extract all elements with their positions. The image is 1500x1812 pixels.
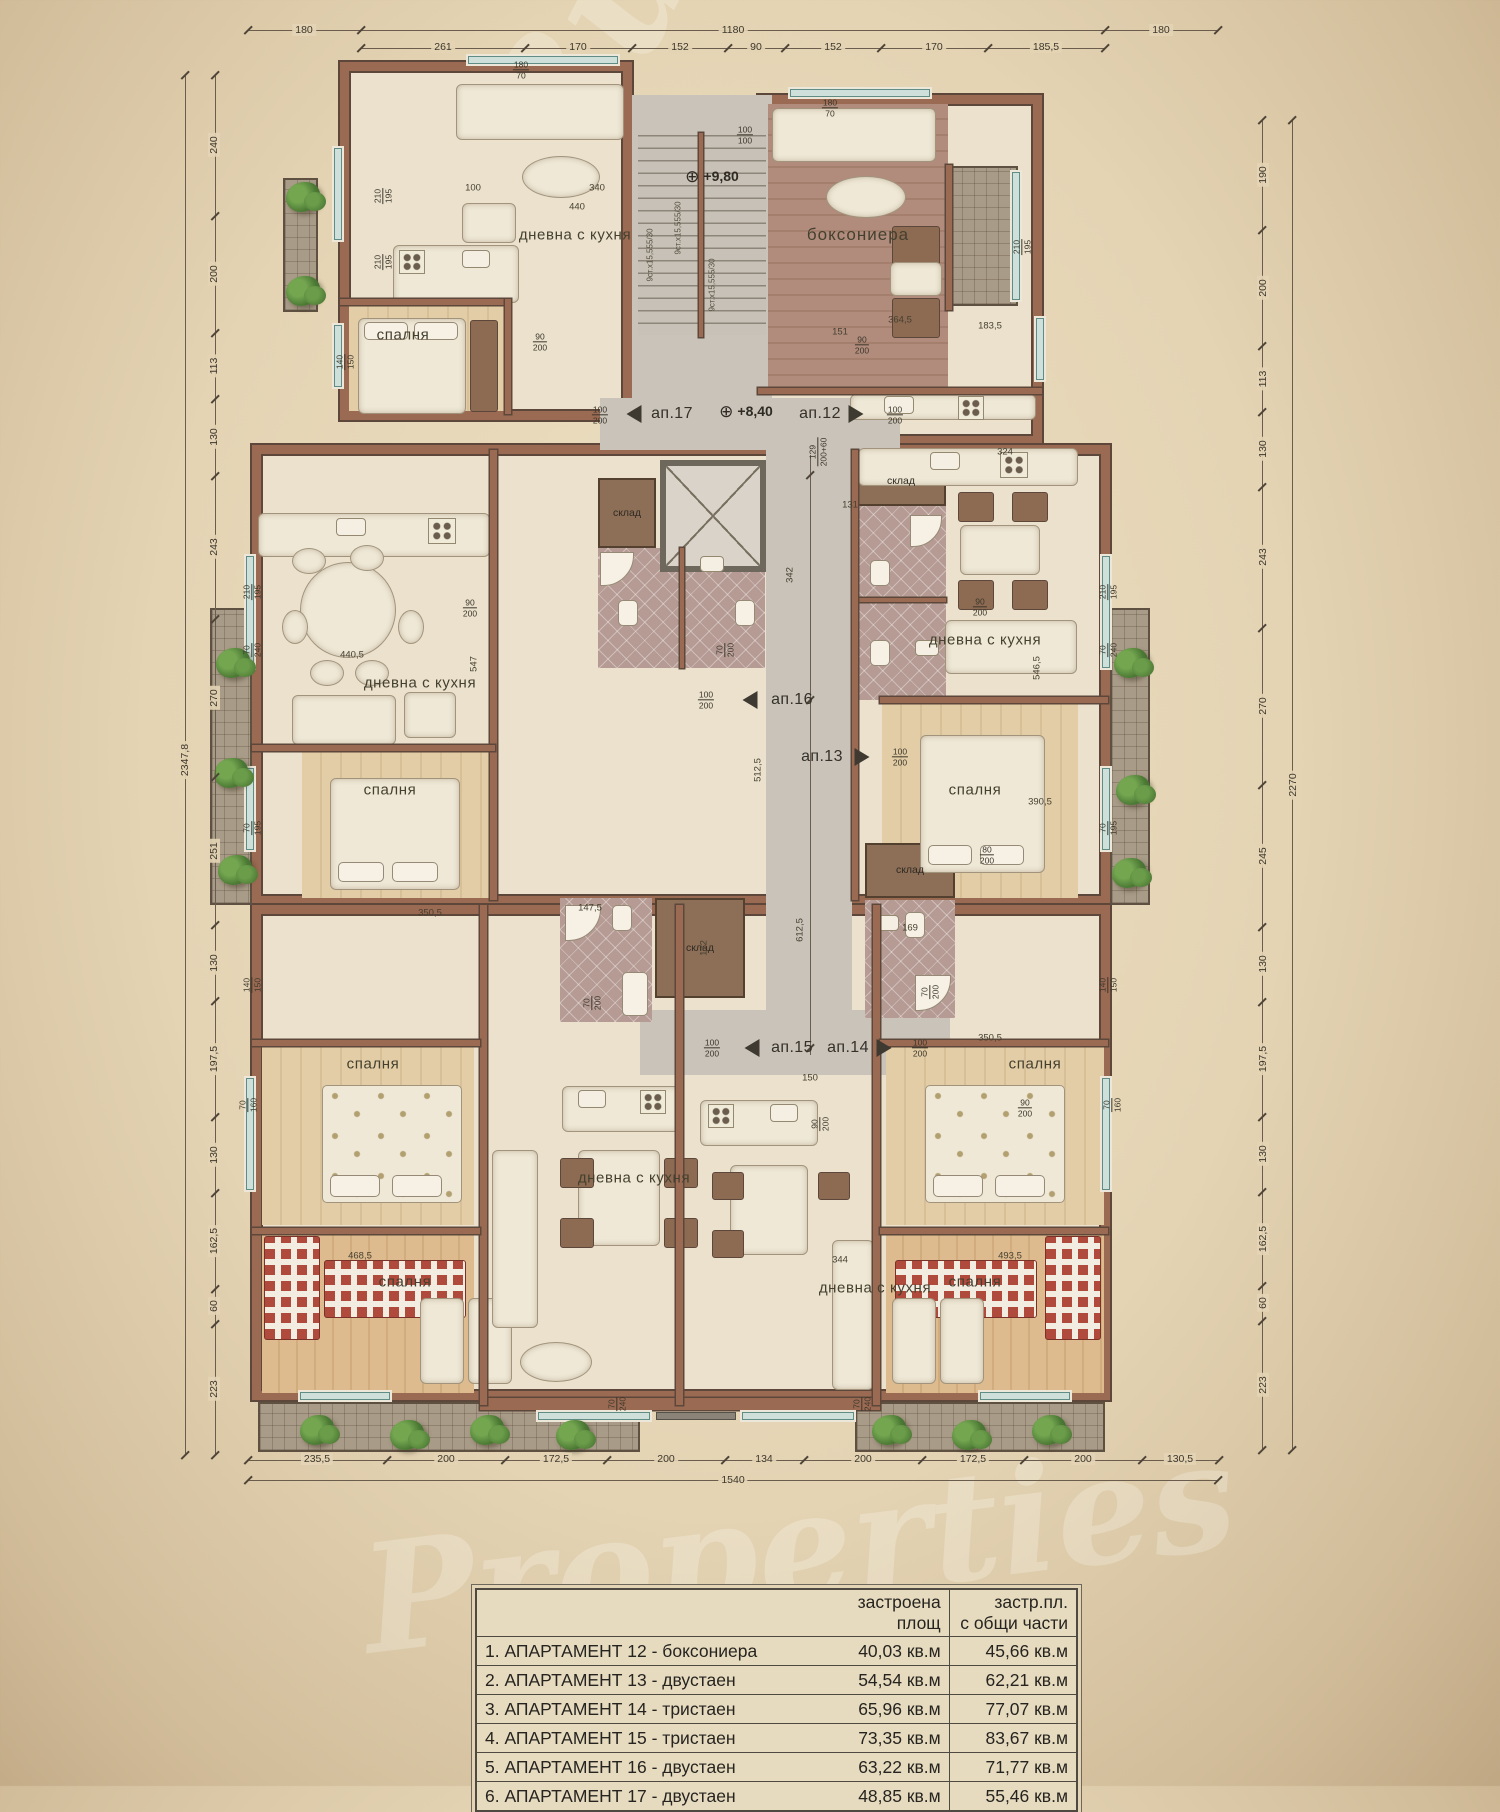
apartment-name: 4. АПАРТАМЕНТ 15 - тристаен	[476, 1724, 790, 1753]
plant	[1032, 1415, 1066, 1445]
dimension-line	[361, 48, 1105, 49]
opening-size-label: 100200	[912, 1037, 928, 1058]
dimension-label: 324	[997, 447, 1013, 458]
window	[1102, 768, 1110, 850]
entry-door	[656, 1412, 736, 1420]
apartment-area-table: застроена площ застр.пл. с общи части 1.…	[475, 1588, 1078, 1812]
dimension-label: 240	[208, 133, 220, 157]
plant	[952, 1420, 986, 1450]
dimension-label: 1180	[719, 24, 748, 36]
storage-label: склад	[887, 475, 915, 487]
room-label: дневна с кухня	[819, 1280, 931, 1297]
partition-wall	[758, 388, 1042, 394]
opening-size-label: 210195	[241, 584, 262, 600]
dimension-label: 2347,8	[179, 741, 191, 779]
table-row: 4. АПАРТАМЕНТ 15 - тристаен73,35 кв.м83,…	[476, 1724, 1077, 1753]
dimension-label: 2270	[1287, 770, 1299, 799]
dimension-label: 60	[1257, 1294, 1269, 1312]
opening-size-label: 70200	[714, 643, 735, 657]
apartment-marker: ап.14	[827, 1039, 869, 1057]
dimension-label: 100	[465, 183, 481, 194]
bathtub	[622, 972, 648, 1016]
plant	[218, 855, 252, 885]
dimension-label: 197,5	[1257, 1043, 1269, 1075]
armchair	[404, 692, 456, 738]
dimension-label: 113	[1257, 368, 1269, 391]
dimension-label: 235,5	[301, 1453, 333, 1465]
window	[300, 1392, 390, 1400]
stove	[958, 396, 984, 420]
terrace-top-right	[948, 166, 1018, 306]
stair-divider	[699, 133, 703, 337]
table	[890, 262, 942, 296]
dimension-label: 200	[208, 262, 220, 286]
plant	[286, 182, 320, 212]
dimension-label: 90	[747, 41, 765, 53]
opening-size-label: 70200	[919, 985, 940, 999]
opening-size-label: 70240	[851, 1397, 872, 1411]
opening-size-label: 140150	[334, 354, 355, 370]
dimension-label: 152	[821, 41, 845, 53]
dimension-label: 170	[566, 41, 590, 53]
storage-label: склад	[613, 507, 641, 519]
opening-size-label: 210195	[1097, 584, 1118, 600]
dining-table	[300, 562, 396, 658]
partition-wall	[480, 905, 487, 1405]
room-label: дневна с кухня	[578, 1170, 690, 1187]
pillow	[928, 845, 972, 865]
header-line: застр.пл.	[958, 1592, 1068, 1613]
stove	[399, 250, 425, 274]
built-area-value: 40,03 кв.м	[790, 1637, 950, 1666]
table-row: 1. АПАРТАМЕНТ 12 - боксониера40,03 кв.м4…	[476, 1637, 1077, 1666]
toilet	[612, 905, 632, 931]
chair	[712, 1172, 744, 1200]
dimension-label: 60	[208, 1297, 220, 1315]
bed	[940, 1298, 984, 1384]
sofa	[292, 695, 396, 745]
dimension-label: 197,5	[208, 1043, 220, 1075]
chair	[1012, 580, 1048, 610]
partition-wall	[340, 299, 510, 305]
dimension-label: 162,5	[1257, 1223, 1269, 1255]
total-area-value: 77,07 кв.м	[949, 1695, 1077, 1724]
header-line: площ	[798, 1613, 941, 1634]
total-area-value: 62,21 кв.м	[949, 1666, 1077, 1695]
total-area-value: 83,67 кв.м	[949, 1724, 1077, 1753]
coffee-table	[826, 176, 906, 218]
plant	[872, 1415, 906, 1445]
chair	[398, 610, 424, 644]
sink	[700, 556, 724, 572]
sink	[336, 518, 366, 536]
apartment-name: 3. АПАРТАМЕНТ 14 - тристаен	[476, 1695, 790, 1724]
opening-size-label: 100200	[592, 404, 608, 425]
opening-size-label: 70195	[1097, 821, 1118, 835]
dimension-label: 512,5	[753, 758, 764, 782]
dimension-label: 340	[589, 183, 605, 194]
dimension-label: 150	[802, 1073, 818, 1084]
opening-size-label: 140150	[1097, 977, 1118, 993]
chair	[560, 1218, 594, 1248]
sink	[578, 1090, 606, 1108]
apartment-name: 1. АПАРТАМЕНТ 12 - боксониера	[476, 1637, 790, 1666]
dimension-label: 223	[208, 1377, 220, 1401]
dimension-label: 113	[208, 355, 220, 378]
dimension-label: 200	[434, 1453, 458, 1465]
dimension-label: 493,5	[998, 1251, 1022, 1262]
opening-size-label: 18070	[513, 59, 529, 80]
pillow	[392, 1175, 442, 1197]
partition-wall	[880, 1228, 1108, 1234]
window	[742, 1412, 854, 1420]
bed	[420, 1298, 464, 1384]
opening-size-label: 100200	[704, 1037, 720, 1058]
stove	[640, 1090, 666, 1114]
partition-wall	[873, 905, 880, 1405]
opening-size-label: 100200	[698, 689, 714, 710]
room-label: дневна с кухня	[364, 675, 476, 692]
sofa	[772, 108, 936, 162]
opening-size-label: 70160	[237, 1098, 258, 1112]
opening-size-label: 129200+60	[807, 438, 828, 467]
bathroom-wall	[680, 548, 684, 668]
apartment-marker: ап.17	[651, 405, 693, 423]
room-label: дневна с кухня	[519, 227, 631, 244]
toilet	[618, 600, 638, 626]
header-built-area: застроена площ	[790, 1589, 950, 1637]
dimension-label: 131	[842, 500, 858, 511]
dimension-label: 223	[1257, 1373, 1269, 1397]
toilet	[870, 560, 890, 586]
dimension-label: 612,5	[795, 918, 806, 942]
dimension-label: 270	[208, 686, 220, 710]
dimension-label: 190	[1257, 163, 1269, 187]
dimension-label: 390,5	[1028, 797, 1052, 808]
dimension-label: 546,5	[1032, 656, 1043, 680]
stair-note: 9ст.х15,555/30	[674, 201, 683, 254]
room-label: спалня	[377, 327, 430, 344]
opening-size-label: 90200	[973, 596, 987, 617]
dimension-label: 342	[785, 567, 796, 583]
dimension-label: 350,5	[978, 1033, 1002, 1044]
dimension-label: 147,5	[578, 903, 602, 914]
partition-wall	[852, 450, 858, 900]
bed	[892, 1298, 936, 1384]
dimension-label: 169	[902, 923, 918, 934]
table-row: 2. АПАРТАМЕНТ 13 - двустаен54,54 кв.м62,…	[476, 1666, 1077, 1695]
dimension-label: 130	[208, 425, 220, 449]
table-header-row: застроена площ застр.пл. с общи части	[476, 1589, 1077, 1637]
dimension-label: 180	[1149, 24, 1173, 36]
sink	[770, 1104, 798, 1122]
floorplan-page: Bulgarian Properties	[0, 0, 1500, 1786]
partition-wall	[946, 165, 952, 310]
opening-size-label: 70240	[1097, 643, 1118, 657]
partition-wall	[676, 905, 683, 1405]
sofa	[492, 1150, 538, 1328]
opening-size-label: 70195	[241, 821, 262, 835]
opening-size-label: 70160	[1101, 1098, 1122, 1112]
sink	[462, 250, 490, 268]
header-total-area: застр.пл. с общи части	[949, 1589, 1077, 1637]
built-area-value: 73,35 кв.м	[790, 1724, 950, 1753]
level-marker: ⊕+9,80	[685, 167, 739, 187]
opening-size-label: 90200	[809, 1117, 830, 1131]
window	[790, 89, 930, 97]
sink	[930, 452, 960, 470]
direction-arrow-right	[849, 405, 864, 423]
built-area-value: 54,54 кв.м	[790, 1666, 950, 1695]
storage-label: склад	[896, 864, 924, 876]
wardrobe	[470, 320, 498, 412]
window	[468, 56, 618, 64]
total-area-value: 45,66 кв.м	[949, 1637, 1077, 1666]
sofa	[456, 84, 624, 140]
dimension-label: 130	[208, 951, 220, 975]
partition-wall	[505, 299, 511, 414]
pillow	[995, 1175, 1045, 1197]
dimension-label: 350,5	[418, 908, 442, 919]
direction-arrow-right	[855, 748, 870, 766]
opening-size-label: 90200	[463, 597, 477, 618]
room-label: спалня	[379, 1274, 432, 1291]
partition-wall	[252, 1228, 480, 1234]
opening-size-label: 70240	[606, 1397, 627, 1411]
chair	[350, 545, 384, 571]
window	[538, 1412, 650, 1420]
dimension-label: 200	[1257, 276, 1269, 300]
window	[1102, 1078, 1110, 1190]
opening-size-label: 18070	[822, 97, 838, 118]
plant	[1116, 775, 1150, 805]
dimension-label: 172,5	[957, 1453, 989, 1465]
chair	[1012, 492, 1048, 522]
dimension-label: 245	[1257, 844, 1269, 868]
plant	[556, 1420, 590, 1450]
pillow	[338, 862, 384, 882]
dining-table	[960, 525, 1040, 575]
total-area-value: 71,77 кв.м	[949, 1753, 1077, 1782]
plant	[286, 276, 320, 306]
apartment-name: 2. АПАРТАМЕНТ 13 - двустаен	[476, 1666, 790, 1695]
dimension-label: 364,5	[888, 315, 912, 326]
bathroom-wall	[856, 598, 946, 602]
opening-size-label: 90200	[855, 334, 869, 355]
dimension-label: 547	[469, 656, 480, 672]
pillow	[392, 862, 438, 882]
chair	[818, 1172, 850, 1200]
built-area-value: 65,96 кв.м	[790, 1695, 950, 1724]
dimension-label: 440	[569, 202, 585, 213]
room-label: спалня	[347, 1056, 400, 1073]
header-empty	[476, 1589, 790, 1637]
direction-arrow-left	[745, 1039, 760, 1057]
kitchen-counter	[850, 394, 1036, 420]
partition-wall	[880, 697, 1108, 703]
dimension-label: 440,5	[340, 650, 364, 661]
built-area-value: 63,22 кв.м	[790, 1753, 950, 1782]
armchair	[462, 203, 516, 243]
opening-size-label: 140150	[241, 977, 262, 993]
opening-size-label: 210195	[372, 254, 393, 270]
room-label: дневна с кухня	[929, 632, 1041, 649]
dimension-label: 243	[1257, 545, 1269, 569]
floor-plan: дневна с кухняспалнябоксониерадневна с к…	[0, 0, 1500, 1786]
chair	[282, 610, 308, 644]
opening-size-label: 90200	[533, 331, 547, 352]
opening-size-label: 90200	[1018, 1097, 1032, 1118]
apartment-name: 5. АПАРТАМЕНТ 16 - двустаен	[476, 1753, 790, 1782]
direction-arrow-left	[627, 405, 642, 423]
dimension-label: 468,5	[348, 1251, 372, 1262]
plant	[470, 1415, 504, 1445]
bed	[264, 1236, 320, 1340]
partition-wall	[252, 1040, 480, 1046]
dimension-label: 130	[1257, 1142, 1269, 1166]
dimension-label: 261	[431, 41, 455, 53]
dimension-label: 243	[208, 535, 220, 559]
level-icon: ⊕	[685, 167, 699, 186]
opening-size-label: 80200	[980, 844, 994, 865]
opening-size-label: 100100	[737, 124, 753, 145]
room-label: спалня	[364, 782, 417, 799]
direction-arrow-left	[743, 691, 758, 709]
table-row: 3. АПАРТАМЕНТ 14 - тристаен65,96 кв.м77,…	[476, 1695, 1077, 1724]
level-marker: ⊕+8,40	[719, 402, 773, 422]
toilet	[735, 600, 755, 626]
opening-size-label: 210195	[1011, 239, 1032, 255]
dimension-label: 344	[832, 1255, 848, 1266]
apartment-marker: ап.13	[801, 748, 843, 766]
dimension-label: 200	[1071, 1453, 1095, 1465]
dimension-label: 130,5	[1164, 1453, 1196, 1465]
opening-size-label: 210195	[372, 188, 393, 204]
opening-size-label: 70200	[581, 996, 602, 1010]
dimension-label: 170	[922, 41, 946, 53]
plant	[390, 1420, 424, 1450]
room-label: спалня	[1009, 1056, 1062, 1073]
opening-size-label: 100200	[887, 404, 903, 425]
dimension-label: 172,5	[540, 1453, 572, 1465]
stove	[428, 518, 456, 544]
dimension-label: 152	[668, 41, 692, 53]
window	[1012, 172, 1020, 300]
bed	[1045, 1236, 1101, 1340]
apartment-marker: ап.12	[799, 405, 841, 423]
plant	[1112, 858, 1146, 888]
window	[246, 1078, 254, 1190]
partition-wall	[252, 745, 495, 751]
dimension-label: 185,5	[1030, 41, 1062, 53]
dimension-label: 162,5	[208, 1225, 220, 1257]
coffee-table	[520, 1342, 592, 1382]
room-label: спалня	[949, 1274, 1002, 1291]
dimension-label: 134	[752, 1453, 776, 1465]
direction-arrow-right	[877, 1039, 892, 1057]
dimension-label: 270	[1257, 694, 1269, 718]
level-icon: ⊕	[719, 402, 733, 421]
dimension-label: 130	[208, 1143, 220, 1167]
partition-wall	[490, 450, 497, 900]
plant	[1114, 648, 1148, 678]
pillow	[933, 1175, 983, 1197]
chair	[958, 492, 994, 522]
room-label: спалня	[949, 782, 1002, 799]
dimension-label: 251	[208, 839, 220, 863]
plant	[300, 1415, 334, 1445]
stair-note: 9ст.х15,555/30	[646, 228, 655, 281]
dimension-label: 151	[832, 327, 848, 338]
dimension-label: 172	[699, 940, 710, 956]
dimension-label: 130	[1257, 952, 1269, 976]
window	[980, 1392, 1070, 1400]
pillow	[330, 1175, 380, 1197]
chair	[712, 1230, 744, 1258]
dimension-label: 200	[654, 1453, 678, 1465]
toilet	[870, 640, 890, 666]
room-label: боксониера	[807, 225, 909, 245]
chair	[310, 660, 344, 686]
window	[334, 148, 342, 240]
stove	[708, 1104, 734, 1128]
dimension-label: 130	[1257, 437, 1269, 461]
apartment-marker: ап.16	[771, 691, 813, 709]
chair	[292, 548, 326, 574]
dimension-label: 183,5	[978, 321, 1002, 332]
stair-note: 9ст.х15,555/30	[708, 258, 717, 311]
opening-size-label: 70240	[241, 643, 262, 657]
dimension-label: 1540	[718, 1474, 747, 1486]
apartment-marker: ап.15	[771, 1039, 813, 1057]
table-row: 5. АПАРТАМЕНТ 16 - двустаен63,22 кв.м71,…	[476, 1753, 1077, 1782]
opening-size-label: 100200	[892, 746, 908, 767]
dimension-label: 200	[851, 1453, 875, 1465]
window	[1036, 318, 1044, 380]
dimension-label: 180	[292, 24, 316, 36]
header-line: застроена	[798, 1592, 941, 1613]
header-line: с общи части	[958, 1613, 1068, 1634]
